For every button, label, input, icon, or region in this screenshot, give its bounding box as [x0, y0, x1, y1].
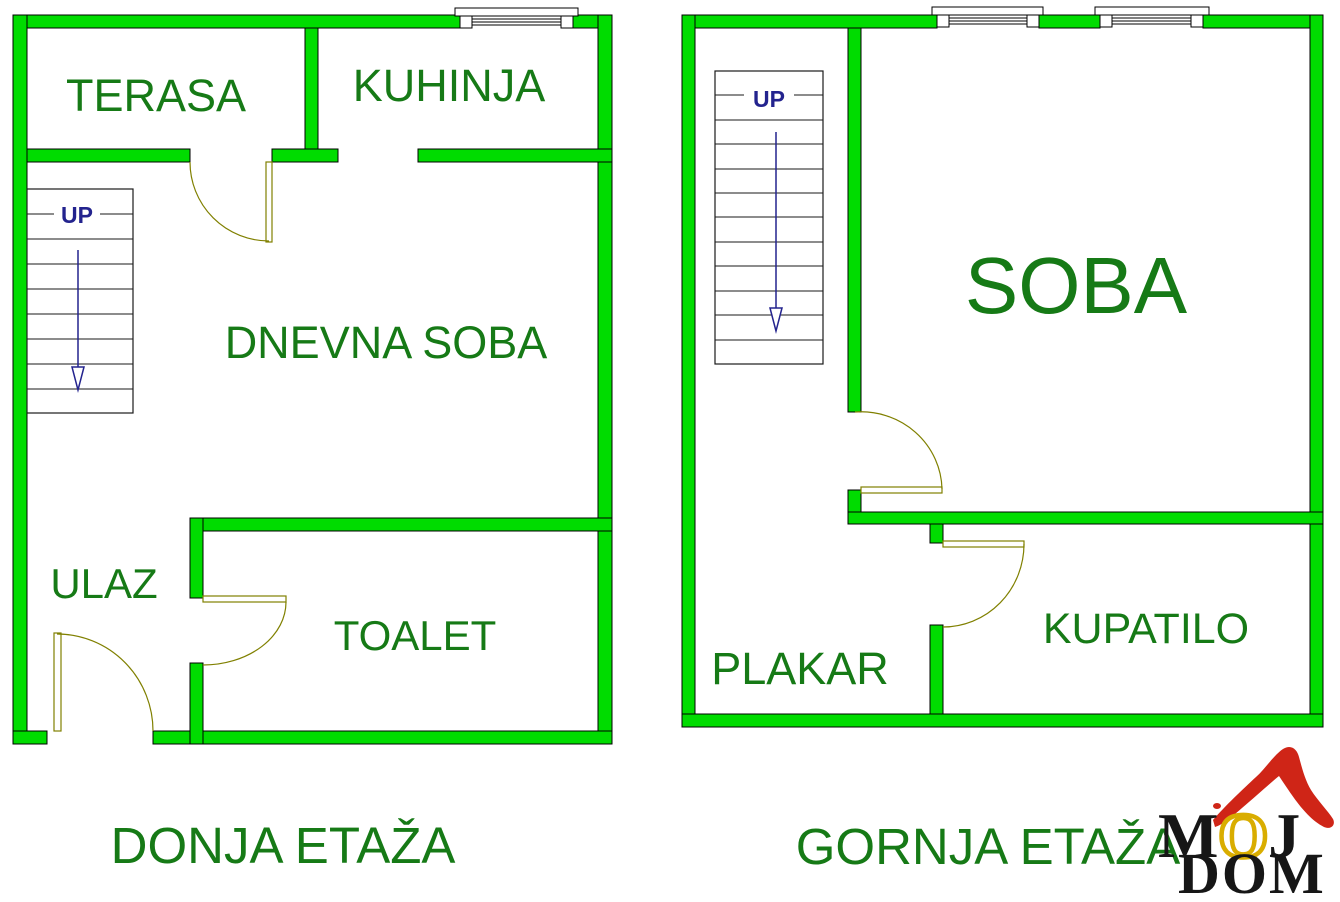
window-ledge — [455, 8, 578, 16]
window-soba-2 — [1095, 7, 1209, 27]
door-leaf — [54, 633, 61, 731]
room-label-dnevna-soba: DNEVNA SOBA — [225, 317, 548, 368]
window-endcap — [1027, 15, 1039, 27]
room-label-soba: SOBA — [965, 241, 1188, 330]
wall-toalet-vertical-lower — [190, 663, 203, 744]
door-entry — [54, 633, 153, 731]
floor-plan-donja: UP TERASA KUHINJA DNEVNA SOBA ULAZ TOALE… — [13, 8, 612, 874]
wall-toalet-top — [190, 518, 612, 531]
room-label-terasa: TERASA — [66, 70, 246, 121]
window-endcap — [937, 15, 949, 27]
wall-terasa-bottom-stub — [272, 149, 338, 162]
wall-hall-soba-divider — [848, 28, 861, 412]
room-label-toalet: TOALET — [334, 612, 497, 659]
agency-logo: MOJ DOM — [1158, 747, 1334, 902]
room-label-kupatilo: KUPATILO — [1043, 605, 1249, 653]
stairs-gornja: UP — [715, 71, 823, 364]
window-kuhinja — [455, 8, 578, 28]
window-endcap — [1191, 15, 1203, 27]
floor-title-donja: DONJA ETAŽA — [111, 817, 456, 874]
stairs-donja: UP — [27, 189, 133, 413]
wall-left — [13, 15, 27, 744]
room-label-kuhinja: KUHINJA — [353, 60, 546, 111]
room-label-plakar: PLAKAR — [711, 643, 889, 694]
door-toalet — [203, 596, 286, 665]
door-swing-arc — [943, 544, 1024, 627]
door-swing-arc — [57, 634, 153, 731]
window-ledge — [1095, 7, 1209, 15]
wall-toalet-vertical-upper — [190, 518, 203, 598]
door-kupatilo — [943, 541, 1024, 627]
window-ledge — [932, 7, 1043, 15]
wall-bottom — [682, 714, 1323, 727]
wall-plakar-kupatilo-divider — [930, 625, 943, 714]
door-swing-arc — [190, 162, 269, 241]
wall-kuhinja-bottom — [418, 149, 612, 162]
floor-plan-gornja: UP SOBA PLAKAR KUPATILO GORNJA ETAŽA — [682, 7, 1323, 875]
wall-top-left — [682, 15, 937, 28]
wall-top-middle — [1039, 15, 1100, 28]
door-leaf — [943, 541, 1024, 547]
logo-text-dom: DOM — [1178, 841, 1326, 902]
stairs-up-label: UP — [61, 202, 93, 228]
room-label-ulaz: ULAZ — [50, 560, 157, 607]
wall-right — [1310, 15, 1323, 727]
door-leaf — [203, 596, 286, 602]
window-endcap — [561, 16, 573, 28]
wall-top-right — [1203, 15, 1323, 28]
wall-bottom-right — [153, 731, 612, 744]
wall-bottom-left — [13, 731, 47, 744]
door-leaf — [861, 487, 942, 493]
floorplan-image: UP TERASA KUHINJA DNEVNA SOBA ULAZ TOALE… — [0, 0, 1340, 902]
wall-soba-bottom — [848, 512, 1323, 524]
wall-terasa-bottom — [27, 149, 190, 162]
wall-kupatilo-door-stub — [930, 524, 943, 543]
wall-soba-door-stub — [848, 490, 861, 514]
door-swing-arc — [855, 412, 942, 489]
wall-top-left — [13, 15, 460, 28]
window-endcap — [460, 16, 472, 28]
wall-right — [598, 15, 612, 744]
floor-title-gornja: GORNJA ETAŽA — [796, 818, 1180, 875]
wall-left — [682, 15, 695, 727]
door-terasa — [190, 162, 272, 242]
door-leaf — [266, 162, 272, 242]
window-soba-1 — [932, 7, 1043, 27]
window-endcap — [1100, 15, 1112, 27]
door-swing-arc — [203, 602, 286, 665]
wall-terasa-kuhinja-divider — [305, 28, 318, 162]
stairs-up-label: UP — [753, 86, 785, 112]
door-soba — [855, 412, 942, 493]
